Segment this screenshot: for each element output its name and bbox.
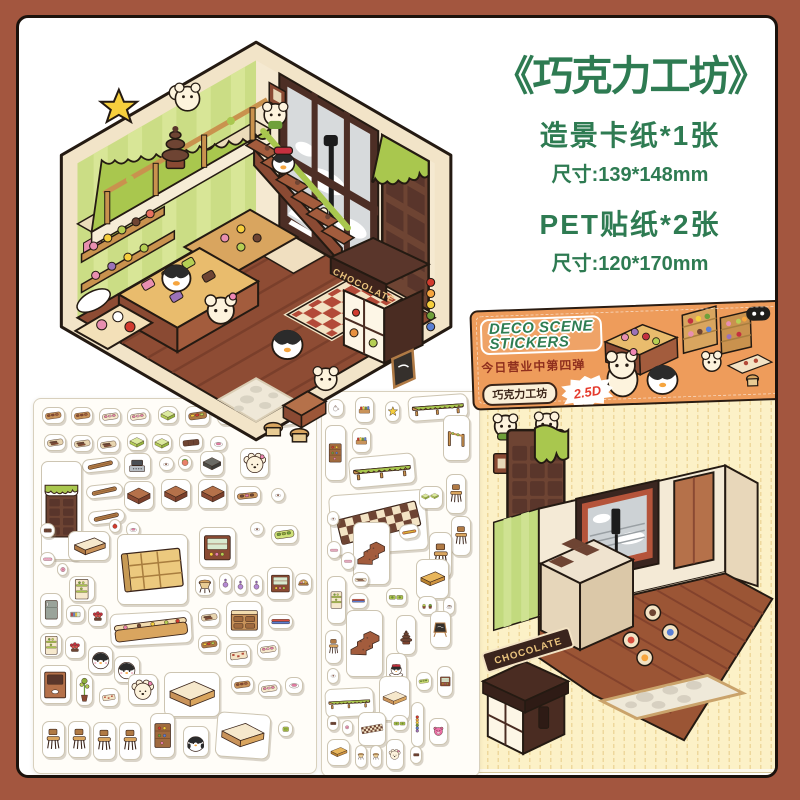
pkg-puppy-small — [701, 351, 722, 372]
sticker-penguinface — [88, 646, 113, 674]
sticker-greentray — [416, 672, 432, 690]
sticker-counter — [109, 610, 192, 647]
package-logo-block: DECO SCENE STICKERS 今日营业中第四弹 巧克力工坊 2.5D — [480, 314, 633, 411]
package-2-5d-badge: 2.5D — [559, 372, 615, 411]
sticker-puppy — [386, 739, 403, 770]
pkg-rug — [727, 354, 772, 374]
sticker-penguinbody — [183, 726, 208, 757]
sticker-puppy — [240, 448, 270, 478]
sticker-basket — [295, 573, 312, 594]
sticker-plank — [86, 482, 124, 500]
sticker-blackboard — [430, 611, 450, 648]
sticker-melon — [178, 455, 192, 470]
sticker-register — [124, 453, 151, 478]
sticker-apple — [109, 519, 121, 532]
sticker-checker — [358, 712, 386, 746]
sticker-choco — [40, 523, 56, 538]
package-subtitle: 今日营业中第四弹 — [481, 354, 632, 376]
sticker-dishsm — [159, 457, 173, 471]
sticker-greenpads — [391, 715, 408, 732]
product-image-panel: NEW — [16, 15, 778, 778]
sticker-chair — [93, 722, 116, 759]
pkg-dark-tag — [746, 306, 770, 321]
sticker-railing — [347, 452, 415, 488]
sticker-bluebar — [349, 593, 368, 608]
sticker-dish — [285, 677, 303, 693]
sticker-stool — [370, 745, 382, 767]
sticker-chair — [42, 721, 65, 758]
sticker-bottle — [250, 575, 263, 595]
sticker-bottle — [234, 575, 247, 595]
card-kiosk — [483, 662, 568, 754]
sticker-greencubes — [419, 486, 443, 509]
sticker-dishsm — [271, 488, 285, 502]
sticker-chair — [119, 722, 142, 759]
card-green-wall — [494, 509, 539, 631]
sticker-cube — [124, 481, 154, 511]
sticker-table — [327, 739, 351, 766]
sticker-stool — [355, 745, 367, 767]
sticker-dishsm — [327, 511, 340, 526]
sticker-shelfbig — [117, 534, 188, 605]
sticker-choco — [410, 746, 423, 764]
sticker-sheet-1 — [33, 398, 317, 774]
sticker-roses — [88, 605, 108, 627]
sticker-bottle — [219, 573, 232, 593]
sticker-cube — [198, 479, 228, 509]
spec-line-sticker-size: 尺寸:120*170mm — [457, 247, 778, 276]
sticker-cabinet — [199, 527, 236, 568]
sticker-shelfopen — [40, 665, 71, 704]
sticker-greenrack — [327, 576, 346, 624]
sticker-candy — [40, 552, 56, 566]
package-series-pill: 巧克力工坊 — [482, 382, 558, 407]
sticker-bench — [68, 531, 110, 561]
penguin-clerk — [162, 265, 190, 291]
sticker-greenrack — [69, 576, 94, 602]
sticker-roses — [65, 636, 85, 658]
sticker-foodsq — [278, 721, 294, 737]
sticker-lbench — [164, 672, 220, 717]
sticker-dishsm — [327, 668, 340, 683]
sticker-puppy — [128, 674, 158, 705]
sticker-dishsm — [250, 522, 264, 536]
sticker-candy — [327, 541, 341, 559]
spec-line-card-size: 尺寸:139*148mm — [457, 158, 778, 187]
sticker-candy — [341, 552, 355, 570]
sticker-cabinet — [437, 666, 453, 697]
logo-bubble: DECO SCENE STICKERS — [480, 315, 603, 355]
sticker-desk — [226, 601, 263, 638]
sticker-books — [66, 605, 84, 624]
sticker-traywide — [234, 486, 261, 505]
sticker-stool — [195, 575, 215, 597]
sticker-rug — [99, 688, 119, 707]
sticker-greenrack — [40, 633, 63, 657]
sticker-cube — [161, 479, 191, 509]
puppy-with-bow — [205, 293, 236, 324]
pkg-shelves — [682, 305, 752, 355]
logo-line2: STICKERS — [489, 333, 594, 352]
sticker-chair — [451, 516, 471, 556]
sticker-tray — [231, 676, 254, 693]
sticker-rug — [226, 644, 251, 666]
sticker-candystrip — [411, 702, 424, 747]
sticker-traypink — [257, 640, 280, 659]
sticker-shelfcol — [150, 713, 175, 758]
sticker-bluebar — [268, 614, 293, 629]
sticker-darkpot — [200, 451, 224, 476]
sticker-greentray — [271, 525, 298, 544]
sticker-package: DECO SCENE STICKERS 今日营业中第四弹 巧克力工坊 2.5D — [469, 299, 778, 410]
sticker-chair — [446, 474, 466, 514]
penguin-front — [272, 330, 302, 359]
product-info-block: 《巧克力工坊》 造景卡纸*1张 尺寸:139*148mm PET贴纸*2张 尺寸… — [457, 56, 778, 276]
sticker-table — [416, 559, 449, 600]
sticker-fridge — [40, 593, 63, 627]
product-title: 《巧克力工坊》 — [457, 56, 778, 98]
sticker-chair — [325, 630, 342, 664]
sticker-chocsticks — [352, 572, 369, 587]
puppy-on-rug — [313, 367, 338, 391]
sticker-cabinet — [267, 567, 294, 600]
sticker-pinkbear — [429, 718, 448, 744]
sticker-choco — [327, 715, 340, 732]
sticker-choctray — [198, 608, 221, 627]
sticker-traypink — [258, 680, 281, 697]
sticker-stairs — [346, 610, 384, 677]
sticker-greenpads — [386, 588, 406, 606]
penguin-on-stairs — [272, 147, 294, 173]
sticker-lbench — [214, 711, 271, 760]
sticker-planttall — [76, 674, 93, 706]
sticker-trayfull — [198, 635, 221, 654]
sticker-chair — [68, 721, 91, 758]
spec-line-card: 造景卡纸*1张 — [457, 114, 778, 154]
sticker-plank — [81, 456, 119, 474]
sticker-pinkdot — [57, 563, 69, 576]
sticker-fountain — [396, 615, 416, 656]
chocolate-shop-hexagon-illustration: NEW — [23, 30, 467, 450]
sticker-pinkdot — [342, 720, 352, 735]
spec-line-sticker: PET贴纸*2张 — [457, 203, 778, 243]
